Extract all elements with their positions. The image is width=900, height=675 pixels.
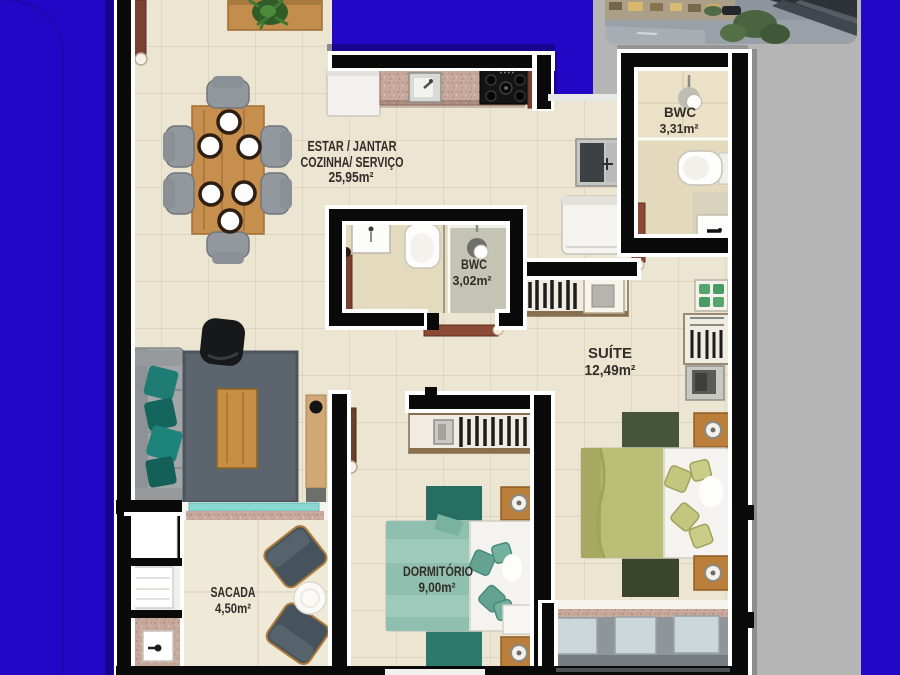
- svg-text:COZINHA/ SERVIÇO: COZINHA/ SERVIÇO: [301, 154, 404, 171]
- svg-text:ESTAR / JANTAR: ESTAR / JANTAR: [308, 138, 397, 155]
- svg-text:DORMITÓRIO: DORMITÓRIO: [403, 562, 473, 579]
- svg-text:4,50m²: 4,50m²: [215, 601, 251, 616]
- svg-text:25,95m²: 25,95m²: [329, 170, 374, 186]
- svg-text:3,02m²: 3,02m²: [453, 273, 493, 288]
- svg-text:SACADA: SACADA: [211, 585, 256, 601]
- svg-text:3,31m²: 3,31m²: [660, 121, 700, 136]
- svg-text:9,00m²: 9,00m²: [419, 580, 456, 595]
- svg-text:12,49m²: 12,49m²: [585, 363, 636, 379]
- svg-text:BWC: BWC: [664, 105, 696, 120]
- svg-text:BWC: BWC: [461, 257, 487, 272]
- svg-text:SUÍTE: SUÍTE: [588, 345, 632, 362]
